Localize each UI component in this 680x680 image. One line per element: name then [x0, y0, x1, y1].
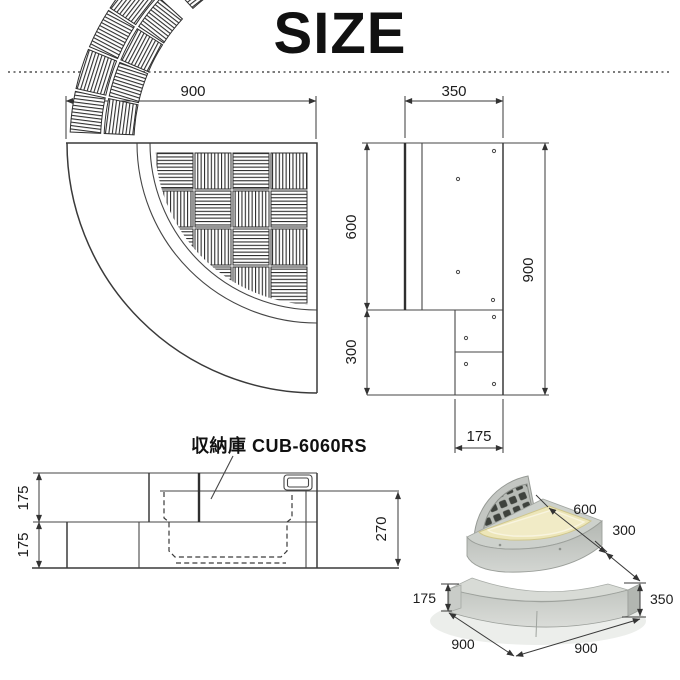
- iso-width-right-label: 900: [574, 640, 598, 656]
- side-total-label: 900: [520, 257, 537, 282]
- front-dim-270: 270: [373, 492, 398, 566]
- storage-leader-line: [211, 456, 233, 499]
- side-dim-900: 900: [520, 143, 545, 395]
- size-diagram-page: SIZE: [0, 0, 680, 680]
- drawing-canvas: 900 350: [0, 0, 680, 680]
- lid-handle-inner: [288, 478, 309, 487]
- hidden-storage-box-outline: [164, 492, 292, 557]
- rim-screw: [559, 548, 562, 551]
- lower-step-left-end: [449, 585, 461, 612]
- side-step-label: 175: [466, 428, 491, 445]
- storage-box-label: 収納庫 CUB-6060RS: [191, 432, 367, 458]
- side-dim-300: 300: [343, 310, 367, 395]
- front-view: 175 175 270: [15, 456, 399, 568]
- front-lower-label: 175: [15, 532, 32, 557]
- deck-tile-pattern: [119, 153, 307, 341]
- side-dim-175: 175: [455, 399, 503, 453]
- side-lower-label: 300: [343, 339, 360, 364]
- plan-width-label: 900: [180, 83, 205, 100]
- plan-view: 900: [66, 0, 317, 393]
- iso-width-left-label: 900: [451, 636, 475, 652]
- front-upper-label: 175: [15, 485, 32, 510]
- lower-step-tile-band: [69, 0, 311, 137]
- front-dim-175-lower: 175: [15, 522, 39, 568]
- side-dim-600: 600: [343, 143, 367, 310]
- front-dim-175-upper: 175: [15, 473, 39, 522]
- side-dim-350: 350: [405, 83, 503, 138]
- lower-step-right-end: [628, 584, 640, 616]
- side-top-label: 350: [441, 83, 466, 100]
- iso-view: 600 300 350 175 900 900: [413, 476, 674, 656]
- iso-step-height-label: 175: [413, 590, 437, 606]
- iso-upper-depth-label: 600: [573, 501, 597, 517]
- front-depth-label: 270: [373, 516, 390, 541]
- iso-lower-depth-label: 300: [612, 522, 636, 538]
- side-view: 350 600 300 900 175: [343, 83, 549, 453]
- iso-height-label: 350: [650, 591, 674, 607]
- lid-handle: [284, 475, 312, 490]
- rim-screw: [499, 544, 502, 547]
- side-upper-label: 600: [343, 214, 360, 239]
